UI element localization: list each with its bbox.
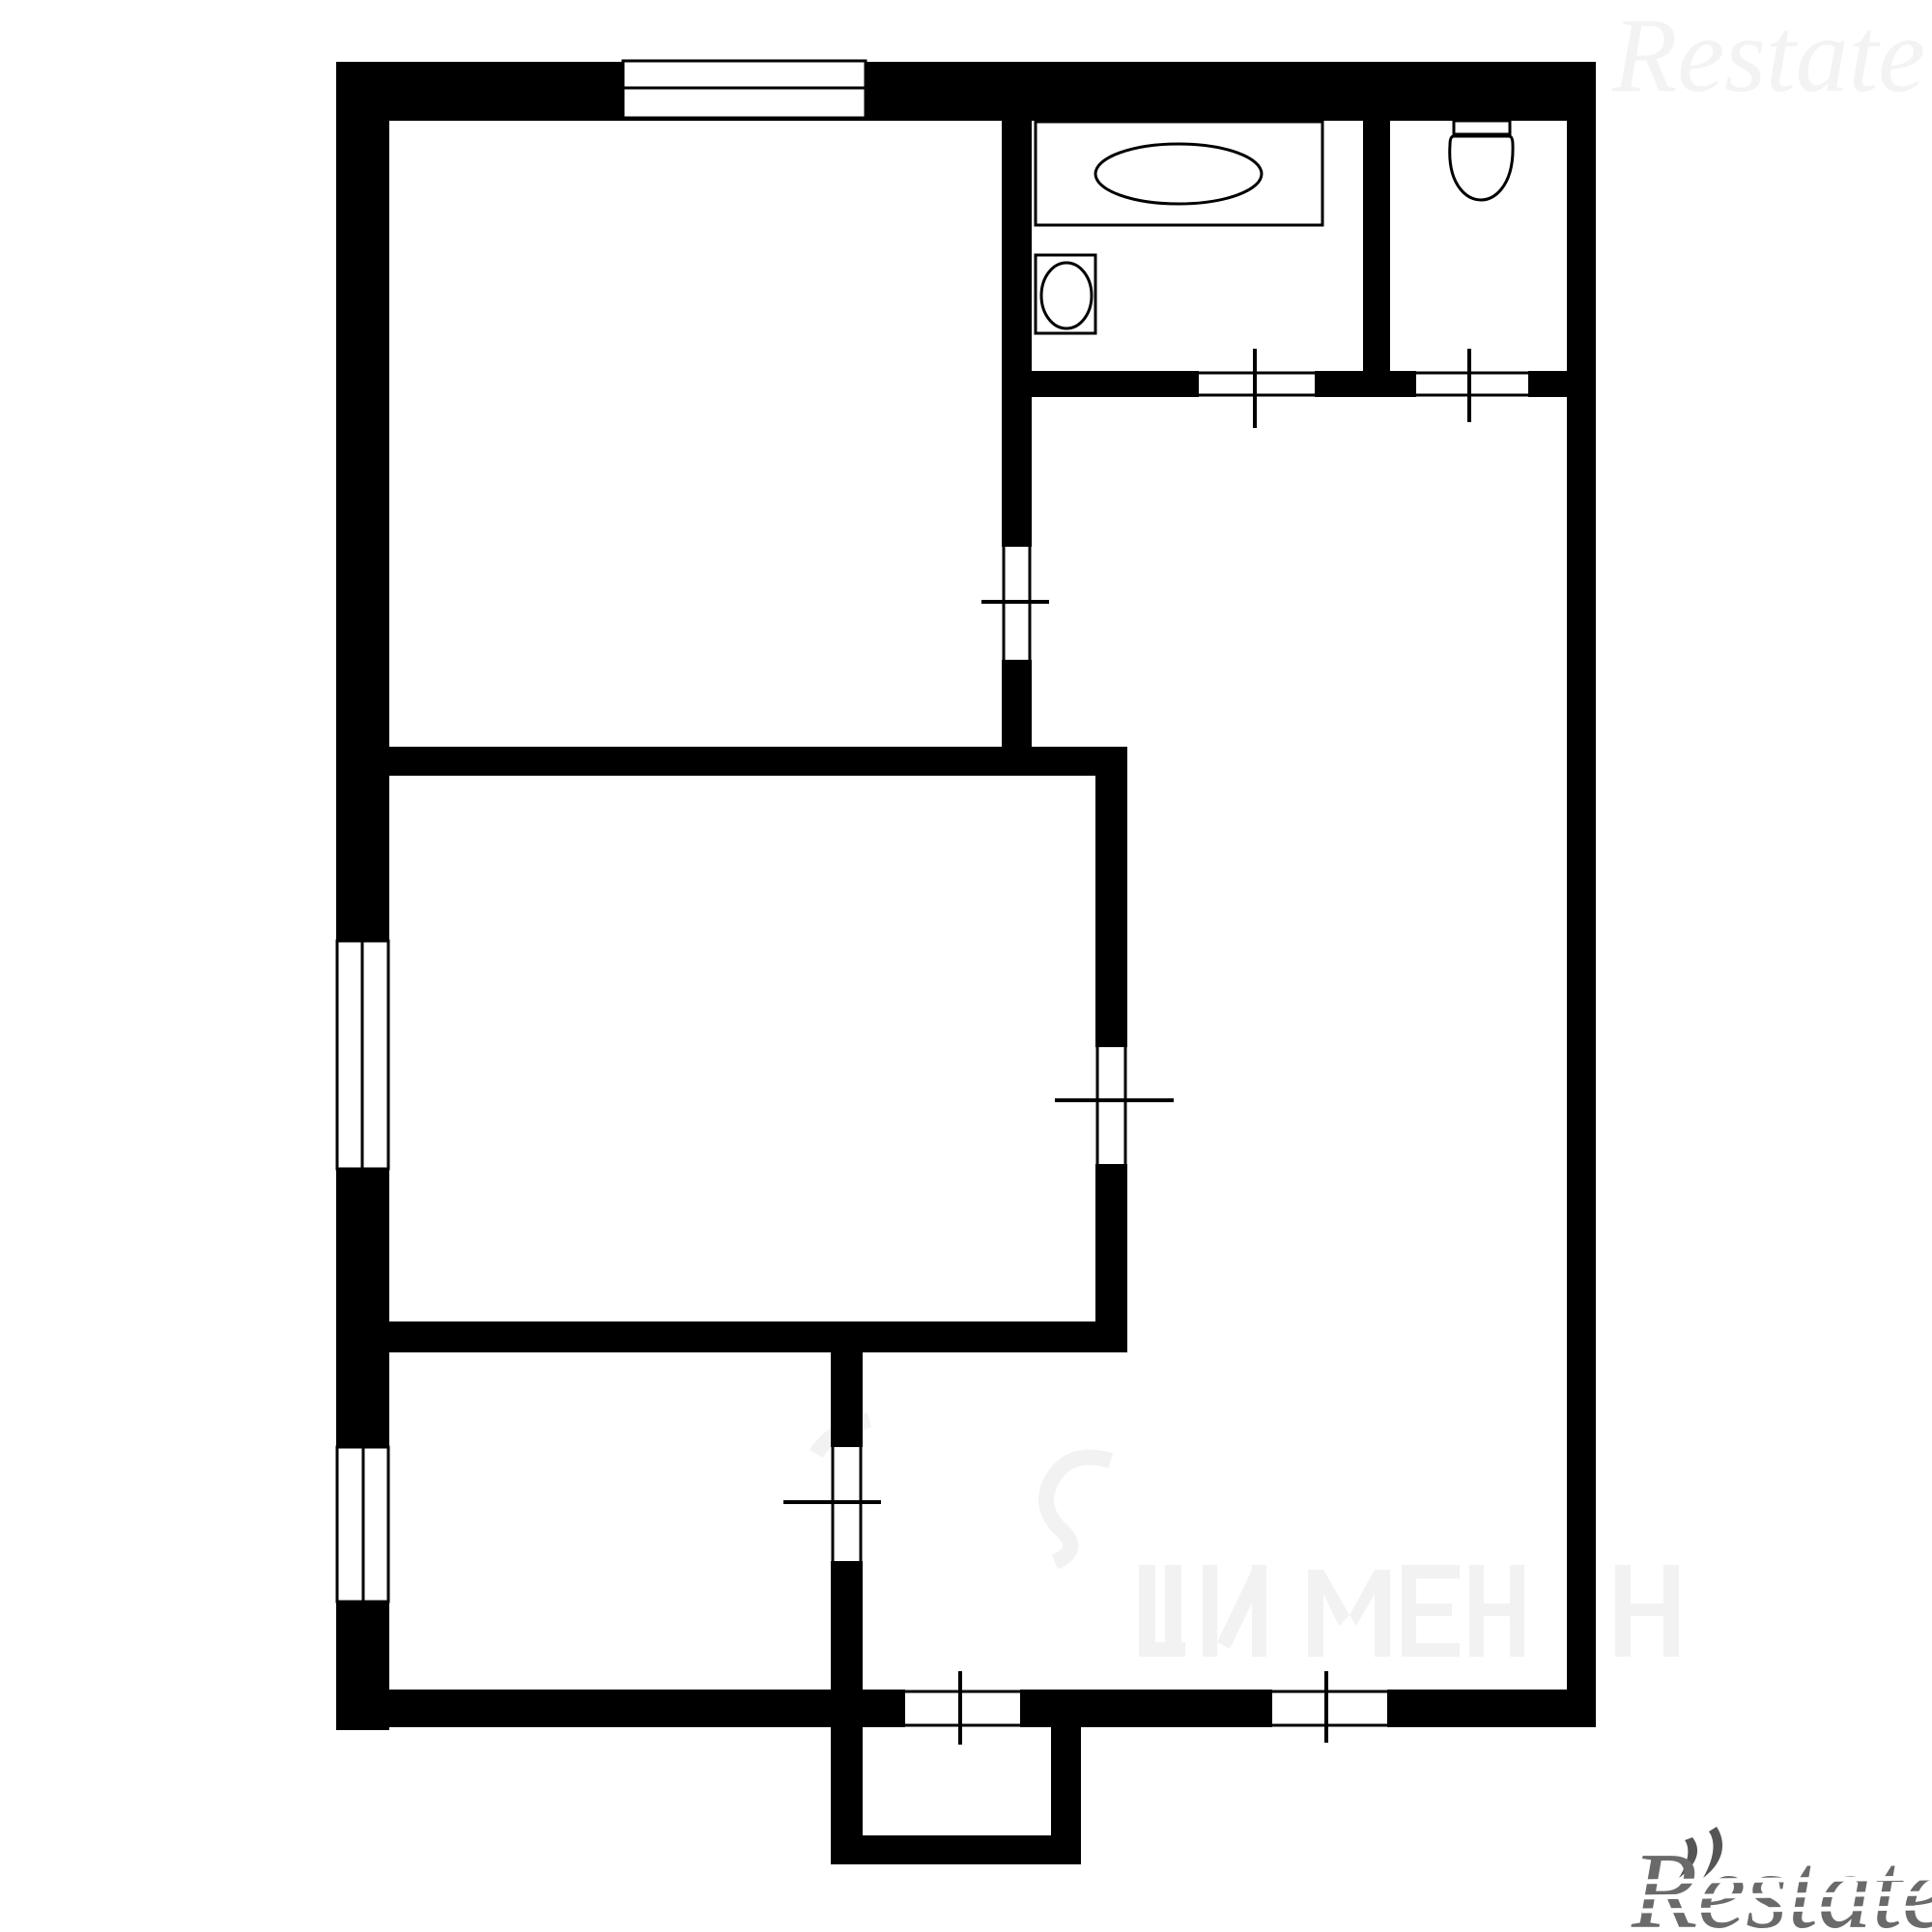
svg-text:Restate: Restate (1611, 0, 1925, 114)
